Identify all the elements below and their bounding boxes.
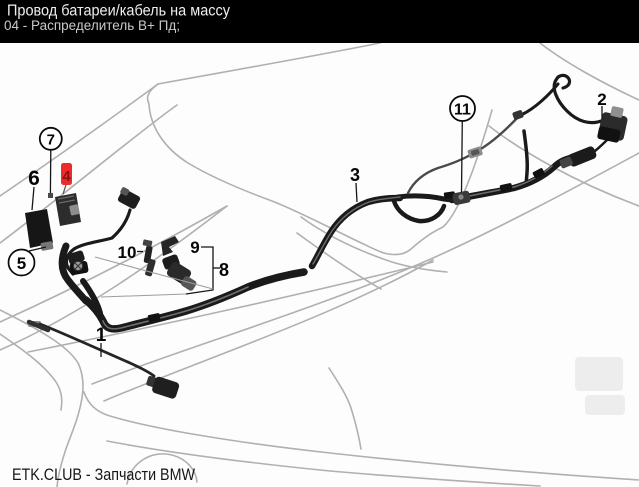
svg-text:2: 2 <box>597 90 606 109</box>
svg-text:3: 3 <box>350 165 360 185</box>
svg-text:Провод батареи/кабель на массу: Провод батареи/кабель на массу <box>7 3 230 20</box>
svg-text:5: 5 <box>17 254 26 273</box>
svg-text:1: 1 <box>96 325 107 346</box>
svg-text:7: 7 <box>47 132 55 149</box>
svg-text:8: 8 <box>219 260 229 280</box>
svg-text:10: 10 <box>118 243 137 262</box>
svg-text:04 - Распределитель B+ Пд;: 04 - Распределитель B+ Пд; <box>4 18 180 33</box>
svg-text:11: 11 <box>454 102 471 119</box>
svg-text:9: 9 <box>190 238 199 257</box>
svg-text:ETK.CLUB - Запчасти BMW: ETK.CLUB - Запчасти BMW <box>12 466 195 484</box>
svg-text:6: 6 <box>28 167 40 190</box>
svg-text:4: 4 <box>62 168 71 185</box>
